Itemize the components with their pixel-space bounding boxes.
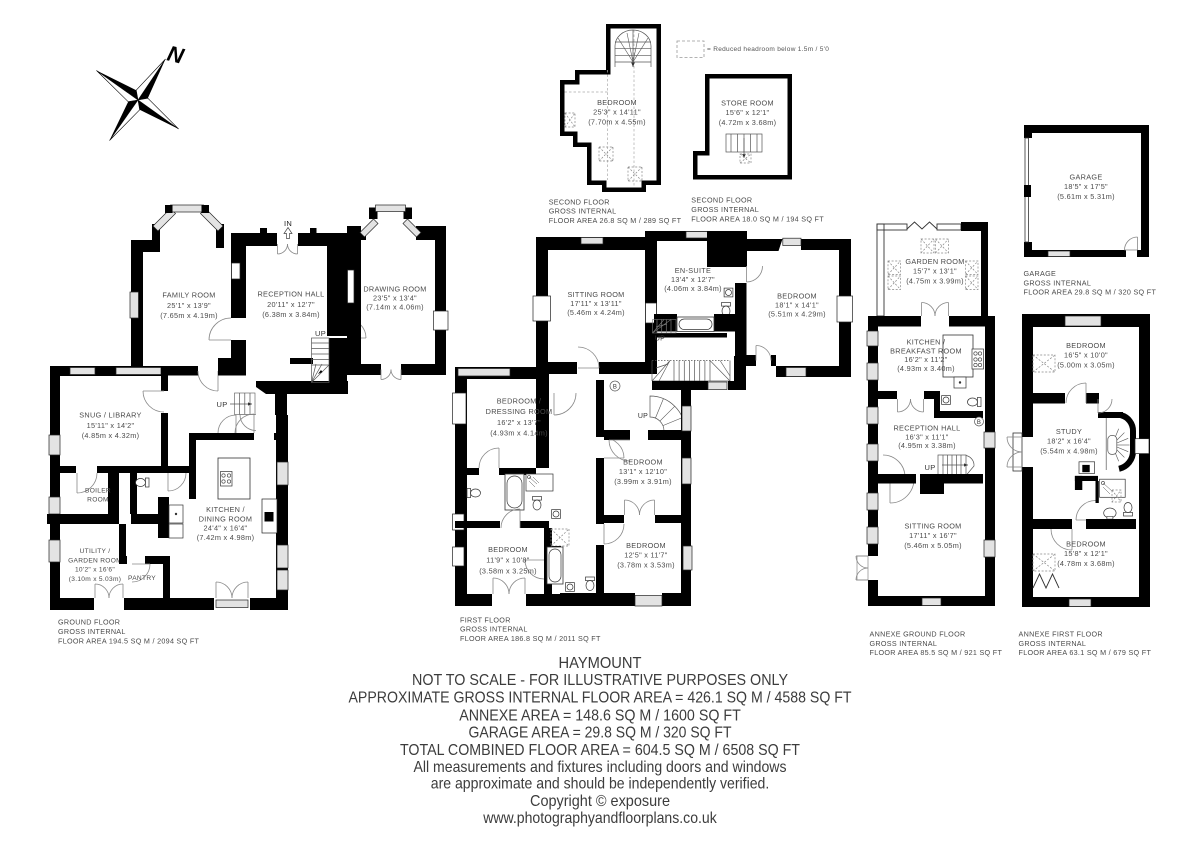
svg-text:RECEPTION HALL: RECEPTION HALL xyxy=(257,290,324,299)
svg-text:BEDROOM: BEDROOM xyxy=(623,458,663,467)
svg-text:GROSS INTERNAL: GROSS INTERNAL xyxy=(549,207,617,216)
svg-text:17'11" x 16'7": 17'11" x 16'7" xyxy=(909,531,957,540)
svg-text:(6.38m x 3.84m): (6.38m x 3.84m) xyxy=(262,310,320,319)
svg-text:Copyright © exposure: Copyright © exposure xyxy=(530,793,670,810)
svg-text:(5.46m x 5.05m): (5.46m x 5.05m) xyxy=(904,541,962,550)
svg-text:ANNEXE FIRST FLOOR: ANNEXE FIRST FLOOR xyxy=(1019,629,1103,638)
svg-text:IN: IN xyxy=(284,219,292,228)
svg-text:16'2" x 13'7": 16'2" x 13'7" xyxy=(497,418,541,427)
svg-text:(7.14m x 4.06m): (7.14m x 4.06m) xyxy=(366,303,424,312)
svg-text:15'7" x 13'1": 15'7" x 13'1" xyxy=(913,267,957,276)
svg-text:DRESSING ROOM: DRESSING ROOM xyxy=(486,407,553,416)
svg-text:GROSS INTERNAL: GROSS INTERNAL xyxy=(58,627,126,636)
svg-text:(4.06m x 3.84m): (4.06m x 3.84m) xyxy=(664,284,722,293)
svg-text:(4.93m x 3.40m): (4.93m x 3.40m) xyxy=(897,364,955,373)
svg-text:SECOND FLOOR: SECOND FLOOR xyxy=(549,197,610,206)
svg-text:TOTAL COMBINED FLOOR AREA = 60: TOTAL COMBINED FLOOR AREA = 604.5 SQ M /… xyxy=(400,742,800,759)
svg-text:UP: UP xyxy=(924,463,935,472)
svg-text:18'1" x 14'1": 18'1" x 14'1" xyxy=(775,301,819,310)
svg-text:GARDEN ROOM: GARDEN ROOM xyxy=(68,557,122,564)
svg-text:17'11" x 13'11": 17'11" x 13'11" xyxy=(570,299,622,308)
svg-text:FIRST FLOOR: FIRST FLOOR xyxy=(460,615,511,624)
svg-text:12'5" x 11'7": 12'5" x 11'7" xyxy=(624,551,667,560)
svg-text:EN-SUITE: EN-SUITE xyxy=(675,266,711,275)
svg-text:(4.75m x 3.99m): (4.75m x 3.99m) xyxy=(906,276,964,285)
svg-text:15'6" x 12'1": 15'6" x 12'1" xyxy=(726,108,770,117)
svg-text:GROUND FLOOR: GROUND FLOOR xyxy=(58,618,120,627)
svg-text:DINING ROOM: DINING ROOM xyxy=(199,514,253,523)
svg-text:13'4" x 12'7": 13'4" x 12'7" xyxy=(671,275,715,284)
svg-text:ANNEXE AREA = 148.6 SQ M / 160: ANNEXE AREA = 148.6 SQ M / 1600 SQ FT xyxy=(459,707,741,724)
svg-text:RECEPTION HALL: RECEPTION HALL xyxy=(893,424,960,433)
svg-text:(4.93m x 4.14m): (4.93m x 4.14m) xyxy=(490,429,548,438)
svg-text:KITCHEN /: KITCHEN / xyxy=(206,505,245,514)
svg-text:BEDROOM: BEDROOM xyxy=(777,292,817,301)
svg-text:SNUG / LIBRARY: SNUG / LIBRARY xyxy=(79,411,141,420)
svg-text:23'5" x 13'4": 23'5" x 13'4" xyxy=(373,294,417,303)
svg-text:(3.10m x 5.03m): (3.10m x 5.03m) xyxy=(69,576,122,583)
svg-text:(3.58m x 3.25m): (3.58m x 3.25m) xyxy=(479,566,537,575)
svg-text:BEDROOM: BEDROOM xyxy=(626,541,666,550)
svg-text:(7.70m x 4.55m): (7.70m x 4.55m) xyxy=(588,117,646,126)
svg-text:25'3" x 14'11": 25'3" x 14'11" xyxy=(593,108,641,117)
svg-text:25'1" x 13'9": 25'1" x 13'9" xyxy=(167,301,211,310)
svg-text:PANTRY: PANTRY xyxy=(128,575,156,582)
svg-text:BEDROOM: BEDROOM xyxy=(597,98,637,107)
svg-text:FLOOR AREA 194.5 SQ M / 2094 S: FLOOR AREA 194.5 SQ M / 2094 SQ FT xyxy=(58,636,200,645)
svg-text:10'2" x 16'6": 10'2" x 16'6" xyxy=(75,567,115,574)
svg-text:FLOOR AREA 26.8 SQ M / 289 SQ: FLOOR AREA 26.8 SQ M / 289 SQ FT xyxy=(549,216,682,225)
svg-text:are approximate and should be: are approximate and should be independen… xyxy=(431,776,770,793)
svg-text:KITCHEN /: KITCHEN / xyxy=(907,338,946,347)
svg-text:11'9" x 10'8": 11'9" x 10'8" xyxy=(486,556,529,565)
svg-text:13'1" x 12'10": 13'1" x 12'10" xyxy=(619,467,667,476)
svg-text:UP: UP xyxy=(638,413,648,420)
svg-text:FLOOR AREA 29.8 SQ M / 320 SQ: FLOOR AREA 29.8 SQ M / 320 SQ FT xyxy=(1024,288,1157,297)
svg-text:GROSS INTERNAL: GROSS INTERNAL xyxy=(1019,639,1087,648)
svg-text:(3.78m x 3.53m): (3.78m x 3.53m) xyxy=(617,560,675,569)
svg-text:FLOOR AREA 63.1 SQ M / 679 SQ: FLOOR AREA 63.1 SQ M / 679 SQ FT xyxy=(1019,648,1152,657)
svg-text:SITTING ROOM: SITTING ROOM xyxy=(904,522,961,531)
svg-text:(3.99m x 3.91m): (3.99m x 3.91m) xyxy=(614,477,672,486)
svg-text:STORE ROOM: STORE ROOM xyxy=(721,99,774,108)
svg-text:GARAGE AREA = 29.8 SQ M / 320: GARAGE AREA = 29.8 SQ M / 320 SQ FT xyxy=(469,724,732,741)
svg-text:15'11" x 14'2": 15'11" x 14'2" xyxy=(87,421,135,430)
svg-text:GARAGE: GARAGE xyxy=(1024,269,1057,278)
svg-text:(5.51m x 4.29m): (5.51m x 4.29m) xyxy=(768,310,826,319)
svg-text:15'8" x 12'1": 15'8" x 12'1" xyxy=(1064,549,1108,558)
svg-text:UP: UP xyxy=(315,329,326,338)
svg-text:BEDROOM: BEDROOM xyxy=(1066,540,1106,549)
svg-text:GARDEN ROOM: GARDEN ROOM xyxy=(905,257,964,266)
svg-text:BEDROOM: BEDROOM xyxy=(488,545,528,554)
svg-text:GROSS INTERNAL: GROSS INTERNAL xyxy=(460,625,528,634)
svg-text:GROSS INTERNAL: GROSS INTERNAL xyxy=(691,205,759,214)
svg-text:HAYMOUNT: HAYMOUNT xyxy=(559,655,642,672)
svg-text:(7.42m x 4.98m): (7.42m x 4.98m) xyxy=(197,533,255,542)
svg-text:(4.78m x 3.68m): (4.78m x 3.68m) xyxy=(1057,559,1115,568)
svg-text:= Reduced headroom below 1.5m: = Reduced headroom below 1.5m / 5'0 xyxy=(707,46,829,53)
svg-text:DRAWING ROOM: DRAWING ROOM xyxy=(363,285,426,294)
svg-text:(4.95m x 3.38m): (4.95m x 3.38m) xyxy=(898,441,956,450)
svg-text:(5.54m x 4.98m): (5.54m x 4.98m) xyxy=(1040,446,1098,455)
svg-text:STUDY: STUDY xyxy=(1056,427,1082,436)
svg-text:(5.46m x 4.24m): (5.46m x 4.24m) xyxy=(567,308,625,317)
svg-text:B: B xyxy=(613,385,617,391)
svg-text:16'3" x 11'1": 16'3" x 11'1" xyxy=(905,432,948,441)
svg-text:GROSS INTERNAL: GROSS INTERNAL xyxy=(1024,278,1092,287)
svg-text:18'2" x 16'4": 18'2" x 16'4" xyxy=(1047,437,1091,446)
svg-text:BREAKFAST ROOM: BREAKFAST ROOM xyxy=(890,346,962,355)
svg-text:BOILER: BOILER xyxy=(85,488,111,495)
svg-text:ANNEXE GROUND FLOOR: ANNEXE GROUND FLOOR xyxy=(870,629,966,638)
svg-text:FAMILY ROOM: FAMILY ROOM xyxy=(162,291,215,300)
svg-text:B: B xyxy=(977,420,981,426)
svg-text:FLOOR AREA 18.0 SQ M / 194 SQ: FLOOR AREA 18.0 SQ M / 194 SQ FT xyxy=(691,214,824,223)
svg-text:FLOOR AREA 186.8 SQ M / 2011 S: FLOOR AREA 186.8 SQ M / 2011 SQ FT xyxy=(460,634,601,643)
svg-text:(4.85m x 4.32m): (4.85m x 4.32m) xyxy=(82,431,140,440)
svg-text:BEDROOM: BEDROOM xyxy=(1066,341,1106,350)
svg-text:UP: UP xyxy=(216,400,227,409)
svg-text:BEDROOM /: BEDROOM / xyxy=(497,397,542,406)
svg-text:24'4" x 16'4": 24'4" x 16'4" xyxy=(204,524,248,533)
svg-text:UP: UP xyxy=(655,336,665,343)
svg-text:UTILITY /: UTILITY / xyxy=(80,548,111,555)
svg-text:APPROXIMATE GROSS INTERNAL FLO: APPROXIMATE GROSS INTERNAL FLOOR AREA = … xyxy=(349,690,852,707)
svg-text:18'5" x 17'5": 18'5" x 17'5" xyxy=(1064,182,1108,191)
svg-text:(5.61m x 5.31m): (5.61m x 5.31m) xyxy=(1057,192,1115,201)
svg-text:SITTING ROOM: SITTING ROOM xyxy=(567,290,624,299)
svg-text:ROOM: ROOM xyxy=(87,496,109,503)
svg-text:NOT TO SCALE - FOR ILLUSTRATIV: NOT TO SCALE - FOR ILLUSTRATIVE PURPOSES… xyxy=(412,672,788,689)
svg-text:(4.72m x 3.68m): (4.72m x 3.68m) xyxy=(719,118,777,127)
svg-text:FLOOR AREA 85.5 SQ M / 921 SQ: FLOOR AREA 85.5 SQ M / 921 SQ FT xyxy=(870,648,1003,657)
svg-text:(5.00m x 3.05m): (5.00m x 3.05m) xyxy=(1057,360,1115,369)
svg-text:www.photographyandfloorplans.c: www.photographyandfloorplans.co.uk xyxy=(482,810,716,827)
svg-text:GROSS INTERNAL: GROSS INTERNAL xyxy=(870,639,938,648)
svg-text:16'5" x 10'0": 16'5" x 10'0" xyxy=(1064,351,1108,360)
svg-text:All measurements and fixtures: All measurements and fixtures including … xyxy=(414,759,787,776)
svg-text:SECOND FLOOR: SECOND FLOOR xyxy=(691,196,752,205)
svg-text:(7.65m x 4.19m): (7.65m x 4.19m) xyxy=(160,311,218,320)
svg-text:20'11" x 12'7": 20'11" x 12'7" xyxy=(267,300,315,309)
svg-text:GARAGE: GARAGE xyxy=(1069,173,1102,182)
svg-text:16'2" x 11'2": 16'2" x 11'2" xyxy=(904,355,947,364)
